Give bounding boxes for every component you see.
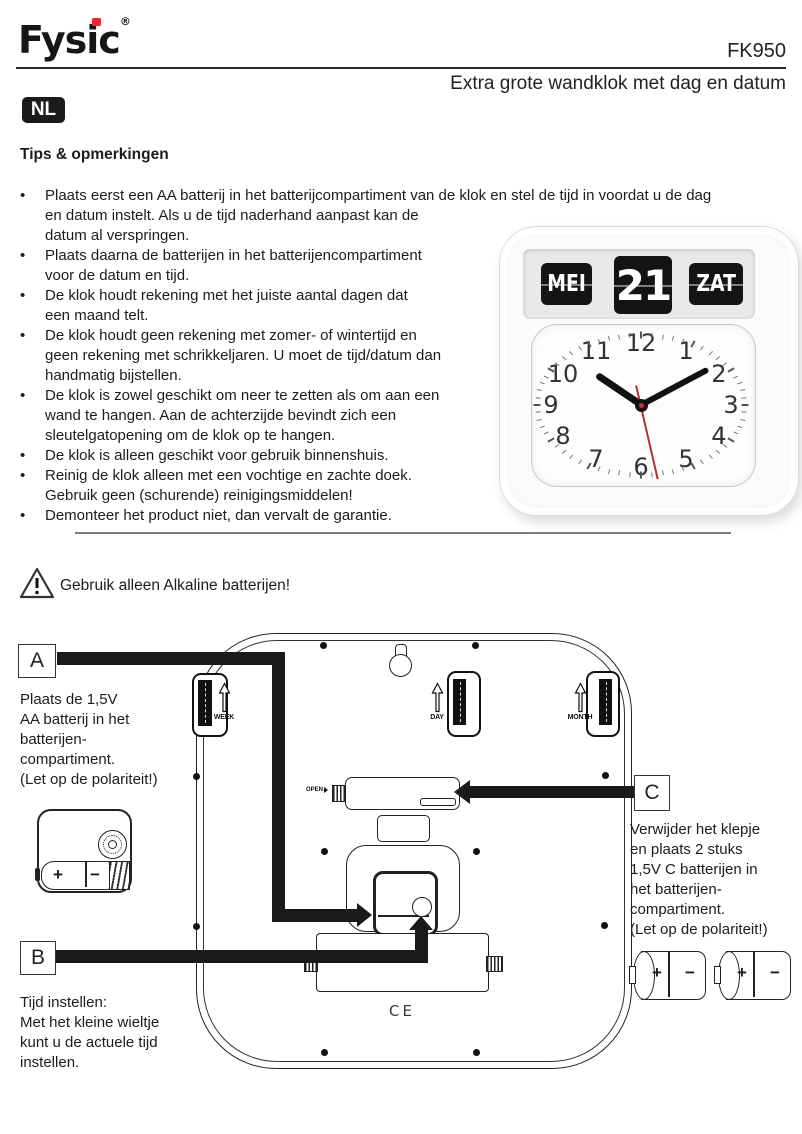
callout-b-arrow-icon <box>409 916 433 930</box>
ce-mark: CE <box>389 1002 415 1020</box>
callout-b-line <box>415 930 428 963</box>
screw-icon <box>601 922 608 929</box>
dial-tick <box>740 419 745 421</box>
dial-tick <box>640 472 642 479</box>
a-note: Plaats de 1,5VAA batterij in hetbatterij… <box>20 690 158 790</box>
header-rule <box>16 67 786 69</box>
section-divider <box>75 532 731 534</box>
dial-number: 9 <box>543 391 558 419</box>
flip-month-card: MEI <box>541 263 592 305</box>
compartment-latch-right <box>486 956 503 972</box>
dial-tick <box>742 404 749 406</box>
callout-a-line <box>57 652 285 665</box>
knob-center <box>108 840 117 849</box>
battery-minus-label: − <box>90 865 100 885</box>
callout-c-label: C <box>634 775 670 811</box>
brand-text: Fysic <box>18 18 120 62</box>
label-plate <box>377 815 430 842</box>
cover-latch <box>332 785 345 802</box>
battery-spring-icon <box>109 861 130 890</box>
logo-red-dot <box>92 18 101 26</box>
dial-number: 3 <box>723 391 738 419</box>
aa-battery-terminal <box>35 868 40 881</box>
manual-page: Fysic® FK950 Extra grote wandklok met da… <box>0 0 802 1134</box>
c-note: Verwijder het klepjeen plaats 2 stuks1,5… <box>630 820 768 940</box>
brand-logo: Fysic® <box>18 16 131 59</box>
model-number: FK950 <box>727 40 786 63</box>
clock-hub-red-dot <box>639 403 644 408</box>
aa-battery-illustration <box>41 861 111 890</box>
dial-tick <box>742 397 747 398</box>
flip-day-card: 21 <box>614 256 672 314</box>
callout-a-line <box>272 652 285 922</box>
up-arrow-icon <box>218 682 231 713</box>
dial-tick <box>662 334 664 339</box>
month-thumbwheel <box>599 679 612 725</box>
hanger-keyhole-hole <box>389 654 412 677</box>
callout-b-line <box>56 950 428 963</box>
open-text: OPEN <box>306 787 323 793</box>
open-label: OPEN <box>306 787 328 793</box>
screw-icon <box>320 642 327 649</box>
callout-c-arrow-icon <box>454 780 470 804</box>
open-arrow-icon <box>324 787 328 793</box>
registered-mark: ® <box>120 15 131 28</box>
dial-tick <box>651 472 652 477</box>
battery-plus-label: + <box>53 865 63 885</box>
callout-a-arrow-icon <box>357 903 372 927</box>
warning-triangle-icon <box>19 566 55 600</box>
battery-plus-label: + <box>652 963 662 983</box>
screw-icon <box>602 772 609 779</box>
dial-number: 7 <box>588 445 603 473</box>
c-battery-terminal <box>629 966 636 984</box>
callout-a-label: A <box>18 644 56 678</box>
clock-front: MEI 21 ZAT 123456789101112 <box>499 226 799 516</box>
up-arrow-icon <box>574 682 587 713</box>
warning-text: Gebruik alleen Alkaline batterijen! <box>60 577 290 595</box>
language-badge: NL <box>22 97 65 123</box>
c-battery-divider <box>668 952 670 997</box>
screw-icon <box>473 1049 480 1056</box>
battery-minus-label: − <box>770 963 780 983</box>
callout-c-line <box>470 786 636 798</box>
clock-photo: MEI 21 ZAT 123456789101112 <box>497 226 800 518</box>
wheel-label-week: WEEK <box>206 714 242 721</box>
dial-number: 10 <box>548 360 579 388</box>
dial-tick <box>534 404 541 406</box>
page-title: Extra grote wandklok met dag en datum <box>450 73 786 95</box>
wheel-label-month: MONTH <box>562 714 598 721</box>
dial-tick <box>662 471 664 476</box>
c-battery-divider <box>753 952 755 997</box>
screw-icon <box>193 923 200 930</box>
screw-icon <box>321 1049 328 1056</box>
c-battery-terminal <box>714 966 721 984</box>
time-set-wheel <box>412 897 432 917</box>
screw-icon <box>193 773 200 780</box>
battery-plus-label: + <box>737 963 747 983</box>
dial-tick <box>640 332 642 339</box>
screw-icon <box>472 642 479 649</box>
callout-b-label: B <box>20 941 56 975</box>
dial-number: 11 <box>581 337 612 365</box>
dial-tick <box>535 397 540 398</box>
screw-icon <box>321 848 328 855</box>
tips-heading: Tips & opmerkingen <box>20 146 169 164</box>
callout-a-line <box>272 909 358 922</box>
dial-number: 5 <box>678 445 693 473</box>
aa-battery-divider <box>85 862 87 887</box>
battery-minus-label: − <box>685 963 695 983</box>
b-note: Tijd instellen:Met het kleine wieltjekun… <box>20 993 159 1073</box>
aa-cover-slot <box>420 798 456 806</box>
dial-number: 1 <box>678 337 693 365</box>
flip-weekday-card: ZAT <box>689 263 743 305</box>
up-arrow-icon <box>431 682 444 713</box>
wheel-label-day: DAY <box>419 714 455 721</box>
screw-icon <box>473 848 480 855</box>
